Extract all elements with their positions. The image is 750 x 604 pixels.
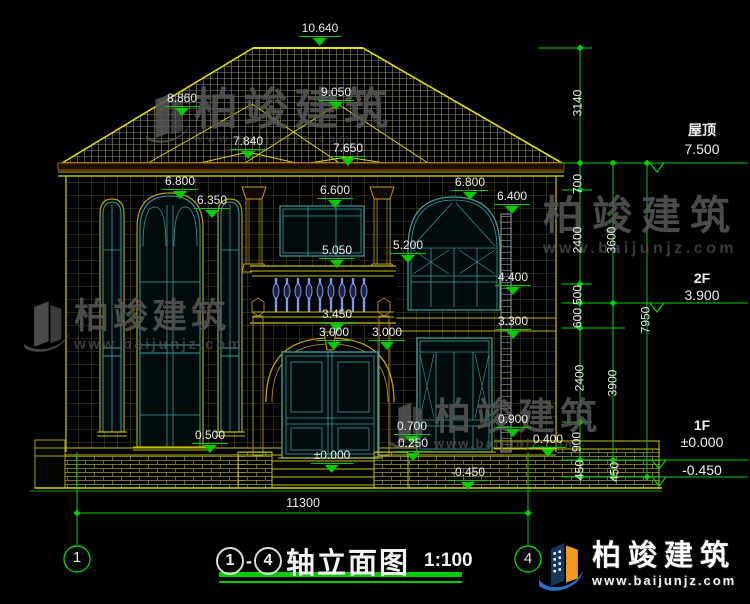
level-triangle-icon [203, 445, 217, 453]
dim-label: 5.200 [390, 239, 426, 263]
company-logo-icon [534, 535, 588, 593]
level-triangle-icon [506, 429, 520, 437]
dim-label: 4.400 [495, 271, 531, 295]
dim-label: 6.600 [317, 184, 353, 208]
dim-label: 10.640 [299, 22, 342, 46]
cad-linework [0, 0, 750, 604]
level-triangle-icon [173, 191, 187, 199]
dim-label: 450 [574, 460, 587, 480]
dim-label: 0.900 [495, 413, 531, 437]
level-triangle-icon [463, 192, 477, 200]
level-value: -0.450 [654, 462, 750, 478]
dim-label: 11300 [286, 497, 320, 510]
balusters [273, 278, 367, 312]
level-triangle-icon [325, 465, 339, 473]
level-triangle-icon [175, 108, 189, 116]
dim-label: 900 [571, 432, 584, 452]
dim-label: 0.250 [395, 437, 431, 461]
dim-label: 2400 [574, 365, 587, 392]
dim-label: 500 [572, 285, 585, 305]
level-name: 屋顶 [654, 120, 750, 140]
dim-label: 5.050 [319, 244, 355, 268]
level-name: 1F [654, 417, 750, 433]
level-triangle-icon [505, 206, 519, 214]
dim-label: 8.860 [164, 92, 200, 116]
drawing-title: 1 - 4 轴立面图 1:100 [216, 540, 473, 582]
level-triangle-icon [541, 449, 555, 457]
level-triangle-icon [327, 342, 341, 350]
elevation-mark-roof: 屋顶 7.500 [654, 120, 750, 157]
hip-roof [58, 48, 564, 176]
dim-label: 6.800 [162, 175, 198, 199]
eave-fascia [58, 163, 564, 170]
dim-label: 450 [609, 462, 622, 482]
elevation-mark-1f: 1F ±0.000 [654, 417, 750, 450]
level-triangle-icon [461, 482, 475, 490]
level-triangle-icon [330, 260, 344, 268]
narrow-window-2 [215, 199, 245, 436]
level-triangle-icon [506, 287, 520, 295]
dim-label: -0.450 [448, 466, 488, 490]
dim-label: 3140 [572, 90, 585, 117]
dim-label: 7.650 [330, 142, 366, 166]
title-axis-end: 4 [254, 547, 282, 575]
company-logo: 柏竣建筑 www.baijunjz.com [534, 535, 736, 593]
dim-label: 3.300 [495, 315, 531, 339]
dim-label: 0.500 [192, 429, 228, 453]
dim-label: ±0.000 [311, 449, 354, 473]
elevation-drawing-page: 柏竣建筑 www.baijunjz.com 柏竣建筑 www.baijunjz.… [0, 0, 750, 604]
dim-label: 700 [572, 174, 585, 194]
level-name: 2F [654, 270, 750, 286]
dim-label: 1 [73, 550, 81, 566]
dim-label: 3900 [607, 370, 620, 397]
dim-label: 9.050 [318, 86, 354, 110]
wide-arched-window [133, 193, 207, 450]
level-triangle-icon [205, 210, 219, 218]
dim-label: 7.840 [230, 135, 266, 159]
title-separator: - [246, 551, 252, 572]
dim-label: 3.000 [316, 326, 352, 350]
dim-label: 4 [524, 551, 532, 567]
dim-label: 7950 [640, 307, 653, 334]
double-door [282, 352, 378, 458]
level-value: 7.500 [654, 141, 750, 157]
dim-label: 3.000 [369, 326, 405, 350]
dim-label: 3600 [606, 227, 619, 254]
level-triangle-icon [401, 255, 415, 263]
level-triangle-icon [380, 342, 394, 350]
level-triangle-icon [506, 331, 520, 339]
dim-label: 6.800 [452, 176, 488, 200]
dim-label: 0.400 [530, 433, 566, 457]
dim-label: 6.350 [194, 194, 230, 218]
dim-label: 600 [572, 308, 585, 328]
level-triangle-icon [241, 151, 255, 159]
dim-label: 2400 [572, 227, 585, 254]
elevation-mark-2f: 2F 3.900 [654, 270, 750, 303]
level-triangle-icon [313, 38, 327, 46]
title-scale: 1:100 [424, 550, 473, 572]
left-bay-windows [97, 193, 245, 450]
level-triangle-icon [328, 200, 342, 208]
title-axis-start: 1 [216, 547, 244, 575]
company-name: 柏竣建筑 [592, 542, 736, 571]
level-value: ±0.000 [654, 434, 750, 450]
level-triangle-icon [341, 158, 355, 166]
level-triangle-icon [329, 102, 343, 110]
level-triangle-icon [406, 453, 420, 461]
company-url: www.baijunjz.com [592, 574, 736, 587]
elevation-mark-minus045: -0.450 [654, 461, 750, 478]
title-text: 轴立面图 [286, 540, 410, 582]
level-value: 3.900 [654, 287, 750, 303]
dim-label: 6.400 [494, 190, 530, 214]
